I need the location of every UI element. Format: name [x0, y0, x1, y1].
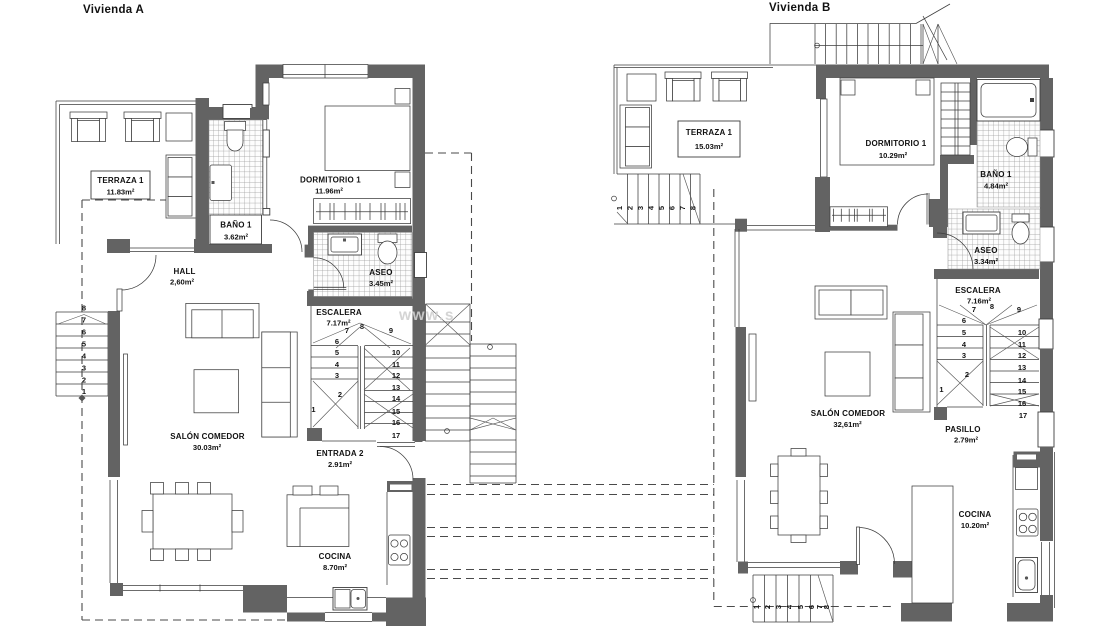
svg-text:8: 8 [360, 322, 364, 331]
svg-text:www.s: www.s [398, 307, 455, 324]
svg-text:PASILLO: PASILLO [945, 425, 980, 434]
svg-text:2: 2 [82, 376, 86, 385]
svg-text:5: 5 [82, 340, 86, 349]
svg-text:9: 9 [389, 326, 393, 335]
svg-text:11: 11 [1018, 340, 1026, 349]
svg-text:4.84m²: 4.84m² [984, 182, 1009, 191]
svg-text:3.34m²: 3.34m² [974, 257, 999, 266]
svg-text:10.20m²: 10.20m² [961, 521, 990, 530]
svg-text:BAÑO 1: BAÑO 1 [220, 221, 252, 230]
svg-text:Vivienda B: Vivienda B [769, 2, 831, 14]
svg-text:7: 7 [678, 206, 687, 210]
svg-text:30.03m²: 30.03m² [193, 443, 222, 452]
svg-text:2: 2 [626, 206, 635, 210]
svg-text:BAÑO 1: BAÑO 1 [980, 170, 1012, 179]
svg-text:10: 10 [1018, 328, 1026, 337]
svg-text:11: 11 [392, 360, 400, 369]
svg-text:5: 5 [796, 605, 805, 609]
svg-text:SALÓN COMEDOR: SALÓN COMEDOR [170, 432, 245, 441]
svg-text:SALÓN COMEDOR: SALÓN COMEDOR [811, 409, 886, 418]
svg-text:8: 8 [822, 605, 831, 609]
svg-text:5: 5 [962, 328, 966, 337]
svg-text:DORMITORIO 1: DORMITORIO 1 [300, 176, 361, 185]
svg-text:11.96m²: 11.96m² [315, 187, 343, 196]
svg-text:1: 1 [752, 605, 761, 609]
svg-text:COCINA: COCINA [959, 510, 992, 519]
svg-text:10.29m²: 10.29m² [879, 151, 908, 160]
svg-text:3.62m²: 3.62m² [224, 233, 249, 242]
svg-text:3: 3 [335, 371, 339, 380]
svg-text:7: 7 [972, 305, 976, 314]
svg-text:ASEO: ASEO [369, 268, 392, 277]
svg-text:14: 14 [1018, 376, 1027, 385]
svg-text:17: 17 [1019, 411, 1027, 420]
svg-text:8: 8 [82, 304, 86, 313]
svg-text:6: 6 [335, 337, 339, 346]
svg-text:6: 6 [962, 316, 966, 325]
svg-text:1: 1 [939, 385, 943, 394]
svg-text:3: 3 [636, 206, 645, 210]
svg-text:15: 15 [1018, 387, 1026, 396]
svg-text:Vivienda A: Vivienda A [83, 4, 144, 16]
svg-text:ESCALERA: ESCALERA [955, 286, 1001, 295]
svg-text:3: 3 [962, 351, 966, 360]
svg-text:3.45m²: 3.45m² [369, 279, 394, 288]
svg-text:3: 3 [82, 364, 86, 373]
svg-text:9: 9 [1017, 305, 1021, 314]
svg-text:12: 12 [392, 371, 400, 380]
svg-text:HALL: HALL [174, 267, 196, 276]
svg-text:14: 14 [392, 394, 401, 403]
svg-text:ASEO: ASEO [974, 246, 997, 255]
svg-text:12: 12 [1018, 351, 1026, 360]
svg-text:8: 8 [990, 302, 994, 311]
svg-text:17: 17 [392, 431, 400, 440]
svg-text:2: 2 [965, 370, 969, 379]
svg-text:2.79m²: 2.79m² [954, 436, 979, 445]
svg-text:DORMITORIO 1: DORMITORIO 1 [866, 139, 927, 148]
svg-text:8.70m²: 8.70m² [323, 563, 348, 572]
svg-text:5: 5 [335, 348, 339, 357]
svg-text:ESCALERA: ESCALERA [316, 308, 362, 317]
svg-text:16: 16 [1018, 399, 1026, 408]
svg-text:15.03m²: 15.03m² [695, 142, 724, 151]
svg-text:32,61m²: 32,61m² [833, 420, 862, 429]
svg-text:2: 2 [338, 390, 342, 399]
svg-text:1: 1 [311, 405, 315, 414]
svg-text:8: 8 [689, 206, 698, 210]
svg-text:TERRAZA 1: TERRAZA 1 [686, 128, 733, 137]
svg-text:11.83m²: 11.83m² [107, 188, 135, 197]
svg-text:1: 1 [82, 387, 86, 396]
svg-text:3: 3 [774, 605, 783, 609]
svg-text:7.16m²: 7.16m² [967, 297, 992, 306]
svg-text:13: 13 [392, 383, 400, 392]
svg-text:COCINA: COCINA [319, 552, 352, 561]
svg-text:13: 13 [1018, 363, 1026, 372]
svg-text:1: 1 [615, 206, 624, 210]
svg-text:6: 6 [668, 206, 677, 210]
svg-text:10: 10 [392, 348, 400, 357]
svg-text:6: 6 [82, 328, 86, 337]
svg-text:16: 16 [392, 418, 400, 427]
svg-text:2,60m²: 2,60m² [170, 278, 195, 287]
svg-text:15: 15 [392, 407, 400, 416]
svg-text:5: 5 [657, 206, 666, 210]
svg-text:2.91m²: 2.91m² [328, 460, 353, 469]
svg-text:7: 7 [345, 326, 349, 335]
svg-text:2: 2 [763, 605, 772, 609]
svg-text:7: 7 [82, 316, 86, 325]
svg-text:ENTRADA 2: ENTRADA 2 [316, 449, 364, 458]
svg-text:TERRAZA 1: TERRAZA 1 [97, 176, 144, 185]
